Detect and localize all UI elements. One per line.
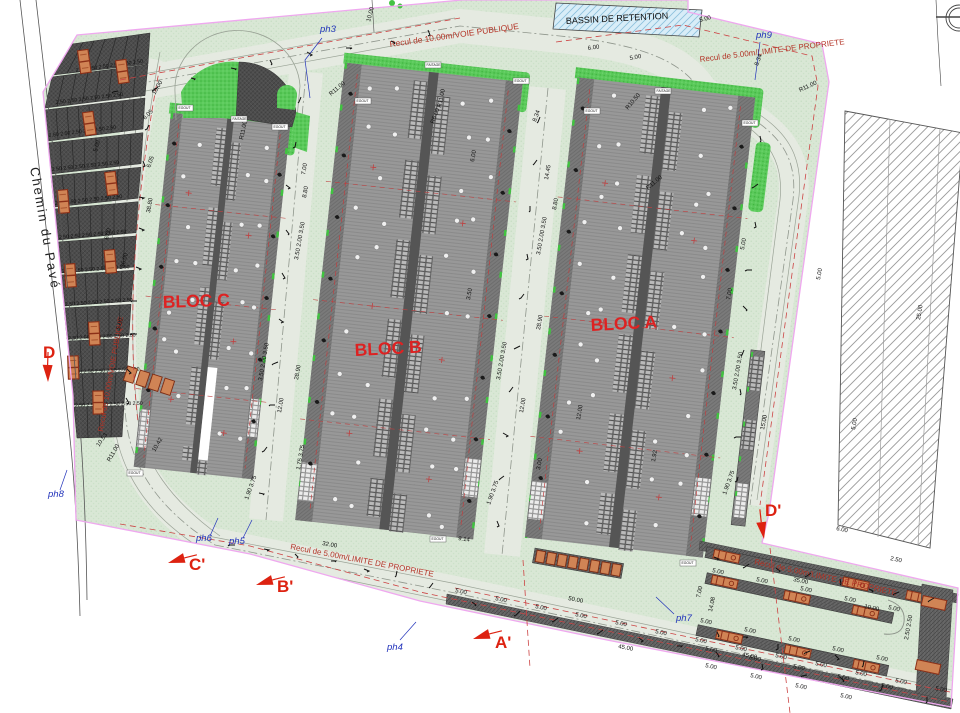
svg-text:2.50: 2.50 [890,556,903,564]
svg-text:EGOUT: EGOUT [682,561,694,565]
svg-text:ph7: ph7 [675,613,693,624]
svg-text:BLOC B: BLOC B [354,337,422,360]
svg-text:5.00: 5.00 [795,683,808,691]
svg-text:C': C' [189,555,205,574]
svg-text:D: D [43,343,55,362]
svg-text:EGOUT: EGOUT [274,125,286,129]
svg-text:EGOUT: EGOUT [179,106,191,110]
svg-text:5.00: 5.00 [840,693,853,701]
svg-text:FAITAGE: FAITAGE [427,63,442,67]
svg-text:5.00: 5.00 [705,663,718,671]
svg-text:A': A' [495,633,511,652]
svg-text:5.00: 5.00 [816,267,824,280]
svg-text:ph6: ph6 [195,533,213,544]
svg-text:B': B' [277,577,293,596]
svg-text:ph3: ph3 [319,24,337,35]
svg-text:ph4: ph4 [386,642,403,653]
svg-text:5.00: 5.00 [750,673,763,681]
svg-text:EGOUT: EGOUT [744,121,756,125]
svg-text:ph8: ph8 [47,489,65,500]
svg-text:D': D' [765,501,781,520]
svg-text:EGOUT: EGOUT [357,99,369,103]
svg-text:FAITAGE: FAITAGE [657,89,672,93]
svg-text:6.00: 6.00 [836,526,849,534]
svg-text:BLOC A: BLOC A [590,312,658,335]
svg-text:EGOUT: EGOUT [432,537,444,541]
svg-text:EGOUT: EGOUT [129,471,141,475]
svg-text:EGOUT: EGOUT [586,109,598,113]
svg-text:FAITAGE: FAITAGE [233,117,248,121]
svg-text:EGOUT: EGOUT [515,79,527,83]
svg-text:ph9: ph9 [755,30,773,41]
svg-text:BLOC C: BLOC C [162,290,230,312]
